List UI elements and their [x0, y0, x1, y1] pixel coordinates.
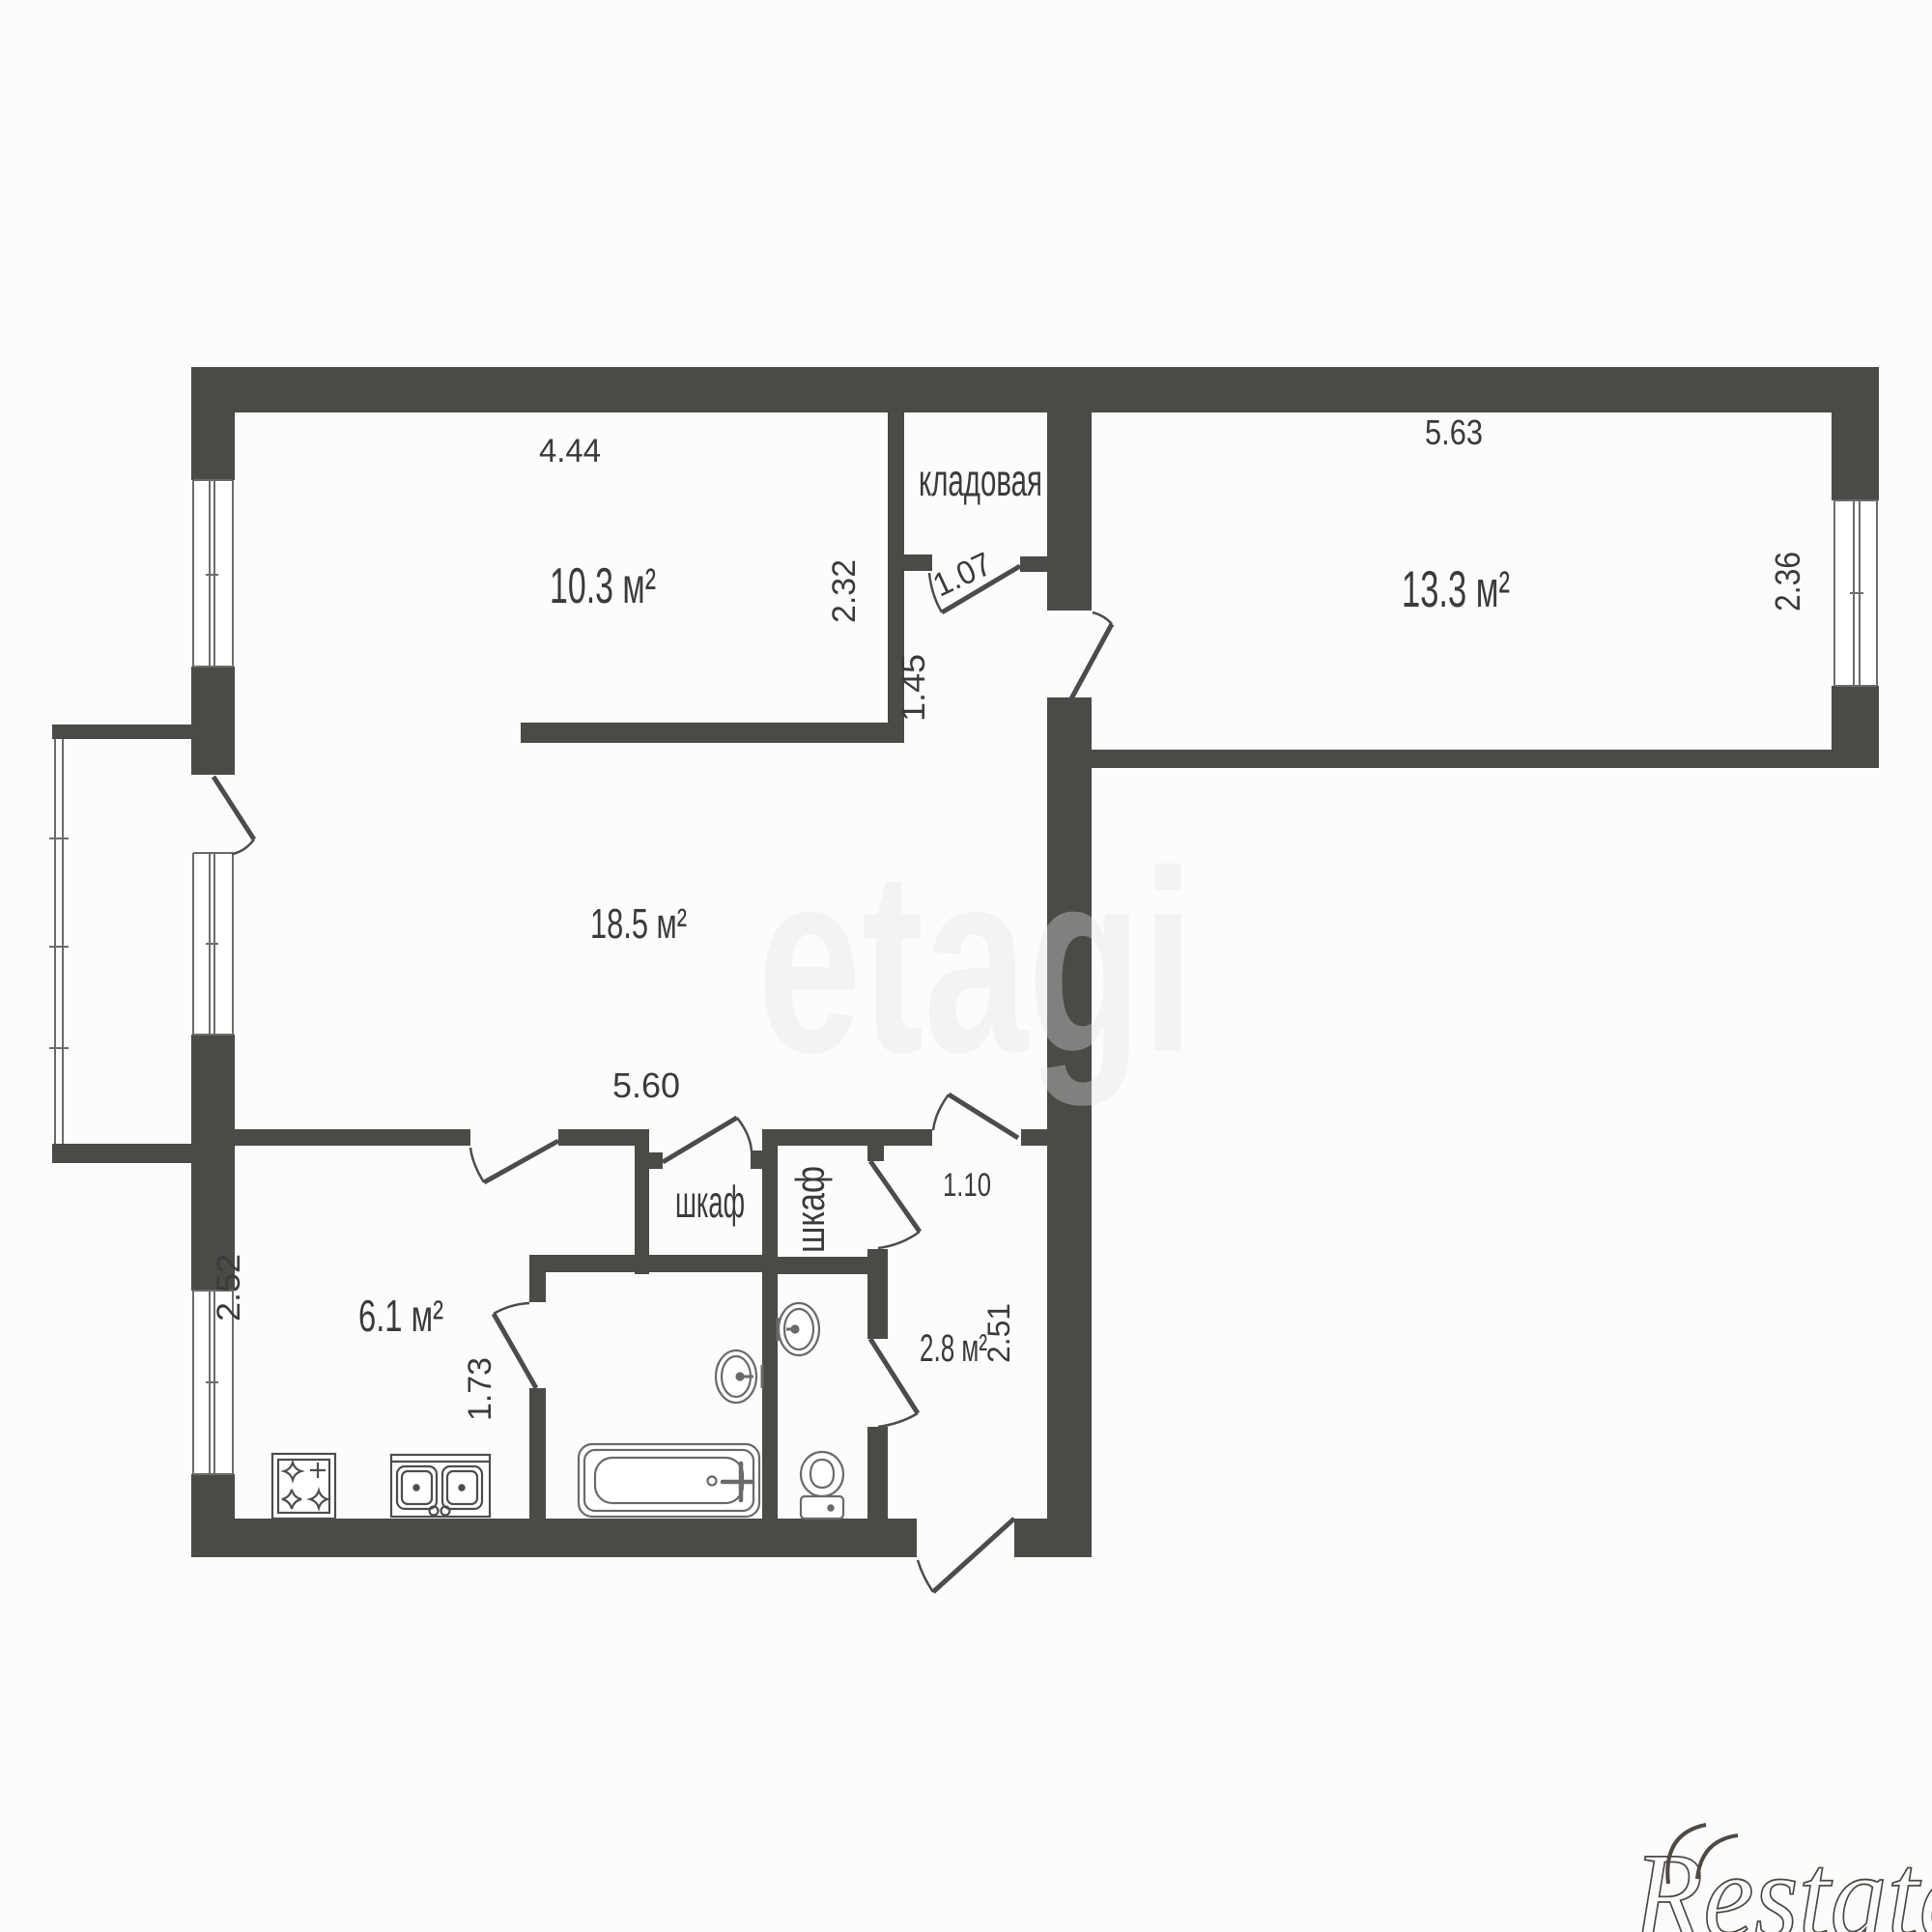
svg-text:2.32: 2.32 — [826, 559, 863, 623]
svg-text:1.45: 1.45 — [895, 654, 932, 722]
svg-text:1.10: 1.10 — [943, 1167, 991, 1204]
svg-text:18.5 м²: 18.5 м² — [590, 900, 687, 948]
svg-text:кладовая: кладовая — [919, 455, 1042, 505]
svg-text:2.52: 2.52 — [211, 1254, 247, 1321]
svg-text:2.36: 2.36 — [1768, 552, 1807, 611]
svg-text:1.73: 1.73 — [462, 1357, 498, 1421]
svg-text:10.3 м²: 10.3 м² — [550, 558, 656, 614]
svg-text:13.3 м²: 13.3 м² — [1402, 561, 1510, 618]
svg-text:etagi: etagi — [757, 816, 1194, 1108]
svg-text:4.44: 4.44 — [539, 433, 601, 469]
svg-text:шкаф: шкаф — [675, 1177, 745, 1227]
svg-text:2.51: 2.51 — [981, 1303, 1016, 1363]
svg-text:5.63: 5.63 — [1425, 412, 1483, 452]
svg-text:6.1 м²: 6.1 м² — [358, 1291, 443, 1341]
svg-text:5.60: 5.60 — [612, 1065, 680, 1105]
svg-text:2.8 м²: 2.8 м² — [920, 1327, 987, 1370]
svg-text:шкаф: шкаф — [787, 1166, 833, 1253]
